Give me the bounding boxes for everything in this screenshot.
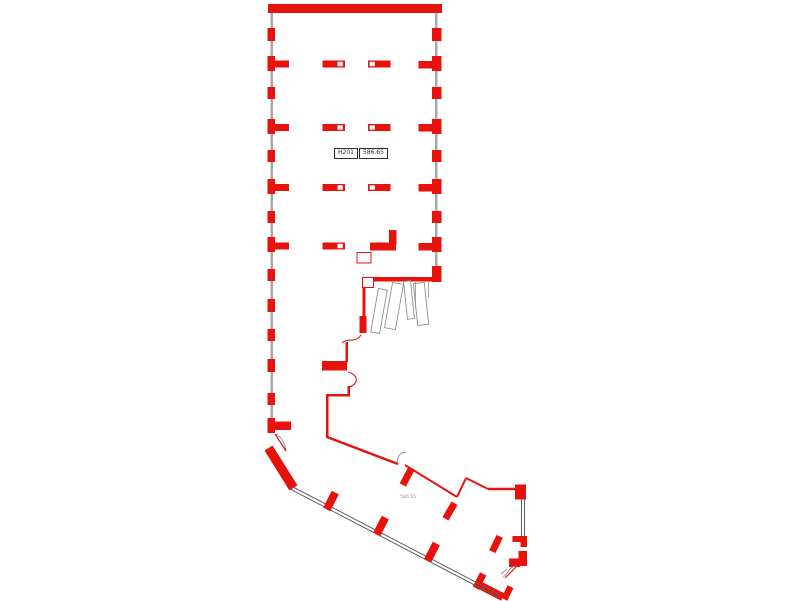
pier-stub-left — [275, 422, 291, 431]
door-leaf — [275, 434, 286, 451]
area-annotation: 586.65 — [400, 494, 416, 499]
wall-block — [515, 485, 526, 500]
pier-stub-right — [419, 124, 433, 132]
pier-left — [268, 56, 276, 71]
column-notch — [370, 125, 375, 129]
pier-stub-left — [275, 61, 289, 68]
column-outline — [357, 253, 371, 264]
pier-diagonal — [442, 501, 457, 520]
pier-left — [268, 87, 276, 99]
pier-stub-left — [275, 184, 289, 191]
pier-window — [323, 491, 339, 512]
pier-free — [489, 535, 503, 553]
column-notch — [338, 62, 343, 66]
wall-inner-left — [346, 342, 349, 362]
pier-window — [373, 516, 389, 537]
glass-double-line — [291, 489, 499, 597]
room-label[interactable]: H201 586.65 — [334, 148, 388, 159]
pier-right — [432, 150, 442, 162]
wall-step — [326, 394, 350, 397]
wall-inner-left — [363, 287, 366, 318]
pier-right — [432, 28, 442, 41]
column-notch — [338, 185, 343, 189]
pier-left — [268, 269, 276, 281]
pier-stub-right — [419, 243, 433, 251]
room-area: 586.65 — [359, 148, 388, 159]
pier-left — [268, 179, 276, 194]
wall-zigzag — [457, 478, 466, 497]
wall-stub — [322, 361, 347, 371]
door-leaf-outline — [404, 281, 415, 320]
pier-left — [268, 329, 276, 341]
wall-diagonal — [327, 437, 398, 464]
door-arc — [348, 372, 356, 387]
door-jamb — [521, 536, 528, 547]
door-leaf-outline — [385, 282, 404, 329]
pier-window — [424, 542, 440, 563]
column-notch — [338, 244, 343, 248]
wall-diagonal — [405, 465, 457, 497]
column-notch — [370, 62, 375, 66]
wall-inner-left-thick — [360, 316, 367, 333]
floor-plan-canvas — [0, 0, 800, 601]
wall-inner-left — [326, 394, 329, 438]
pier-left — [268, 119, 276, 134]
pier-stub-left — [275, 243, 289, 250]
pier-stub-left — [275, 124, 289, 131]
door-jamb — [509, 559, 520, 568]
wall-nub — [389, 230, 397, 244]
wall-corner-diagonal — [265, 446, 298, 491]
floor-plan: H201 586.65 586.65 — [0, 0, 800, 601]
wall-zigzag — [466, 478, 488, 489]
wall-step-notch — [363, 278, 374, 288]
wall-top — [268, 4, 442, 13]
pier-left — [268, 237, 276, 252]
pier-right — [432, 237, 442, 252]
pier-right — [432, 211, 442, 223]
door-arc-gray — [397, 452, 406, 462]
pier-left — [268, 393, 276, 405]
pier-left — [268, 211, 276, 223]
pier-left — [268, 28, 276, 41]
pier-left — [268, 299, 276, 312]
pier-right — [432, 56, 442, 71]
pier-right — [432, 119, 442, 134]
room-number: H201 — [334, 148, 358, 159]
pier-right — [432, 179, 442, 194]
column-notch — [370, 185, 375, 189]
pier-stub-right — [419, 61, 433, 69]
glass-strip-right — [435, 13, 438, 266]
column-notch — [338, 125, 343, 129]
pier-left — [268, 359, 276, 372]
pier-stub-right — [419, 184, 433, 192]
pier-left — [268, 418, 276, 433]
pier-left — [268, 150, 276, 162]
pier-right — [432, 87, 442, 99]
glass-double-line — [292, 487, 500, 595]
door-arc — [342, 335, 361, 343]
